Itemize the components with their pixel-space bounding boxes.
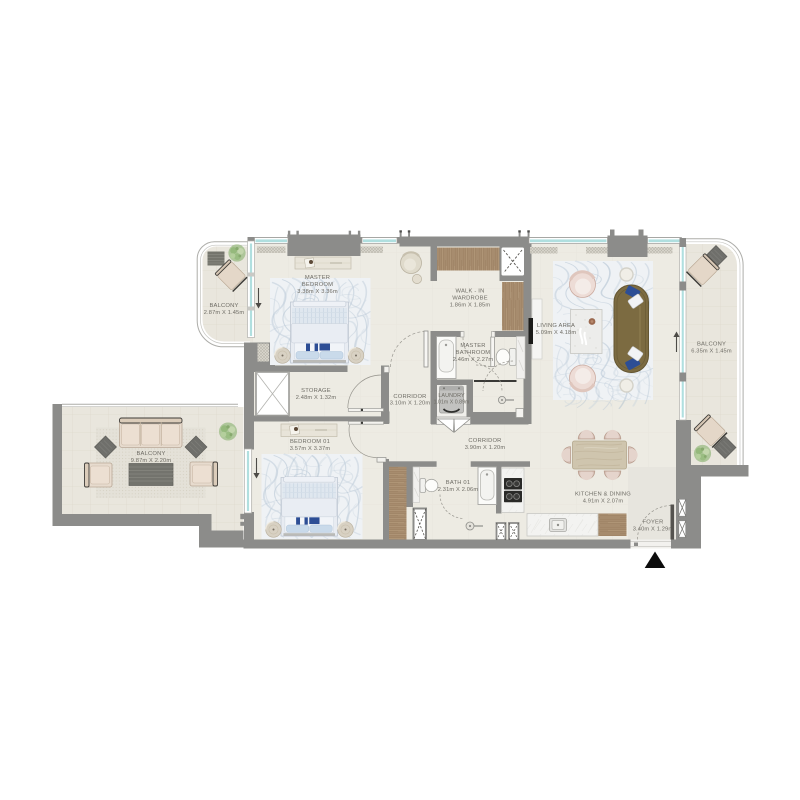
svg-text:MASTER: MASTER [460,343,485,349]
svg-text:1.01m X 0.89m: 1.01m X 0.89m [434,400,470,406]
svg-text:LAUNDRY: LAUNDRY [438,393,465,399]
svg-text:9.87m X 2.20m: 9.87m X 2.20m [131,458,172,464]
svg-text:BALCONY: BALCONY [209,303,238,309]
svg-text:BEDROOM 01: BEDROOM 01 [290,439,330,445]
svg-text:BATHROOM: BATHROOM [456,350,491,356]
svg-text:BATH 01: BATH 01 [446,480,471,486]
svg-text:1.86m X 1.85m: 1.86m X 1.85m [450,303,491,309]
svg-text:CORRIDOR: CORRIDOR [393,394,426,400]
svg-text:6.35m X 1.45m: 6.35m X 1.45m [691,349,732,355]
svg-text:BALCONY: BALCONY [136,451,165,457]
svg-text:2.87m X 1.45m: 2.87m X 1.45m [204,310,245,316]
svg-text:KITCHEN & DINING: KITCHEN & DINING [575,492,631,498]
svg-text:BALCONY: BALCONY [697,342,726,348]
svg-text:2.48m X 1.32m: 2.48m X 1.32m [296,395,337,401]
svg-text:3.57m X 3.37m: 3.57m X 3.37m [290,446,331,452]
svg-text:BEDROOM: BEDROOM [302,282,333,288]
svg-text:3.38m X 3.36m: 3.38m X 3.36m [297,289,338,295]
svg-text:STORAGE: STORAGE [301,388,331,394]
svg-text:WALK - IN: WALK - IN [456,289,485,295]
svg-text:CORRIDOR: CORRIDOR [468,438,501,444]
svg-text:WARDROBE: WARDROBE [452,296,488,302]
svg-text:2.46m X 2.27m: 2.46m X 2.27m [453,357,494,363]
svg-text:FOYER: FOYER [643,520,664,526]
svg-text:3.10m X 1.20m: 3.10m X 1.20m [390,401,431,407]
svg-text:LIVING AREA: LIVING AREA [537,323,575,329]
svg-text:3.90m X 1.20m: 3.90m X 1.20m [465,445,506,451]
svg-text:2.31m X 2.06m: 2.31m X 2.06m [438,487,479,493]
svg-text:5.09m X 4.18m: 5.09m X 4.18m [536,330,577,336]
svg-text:MASTER: MASTER [305,275,330,281]
svg-text:4.91m X 2.07m: 4.91m X 2.07m [583,499,624,505]
